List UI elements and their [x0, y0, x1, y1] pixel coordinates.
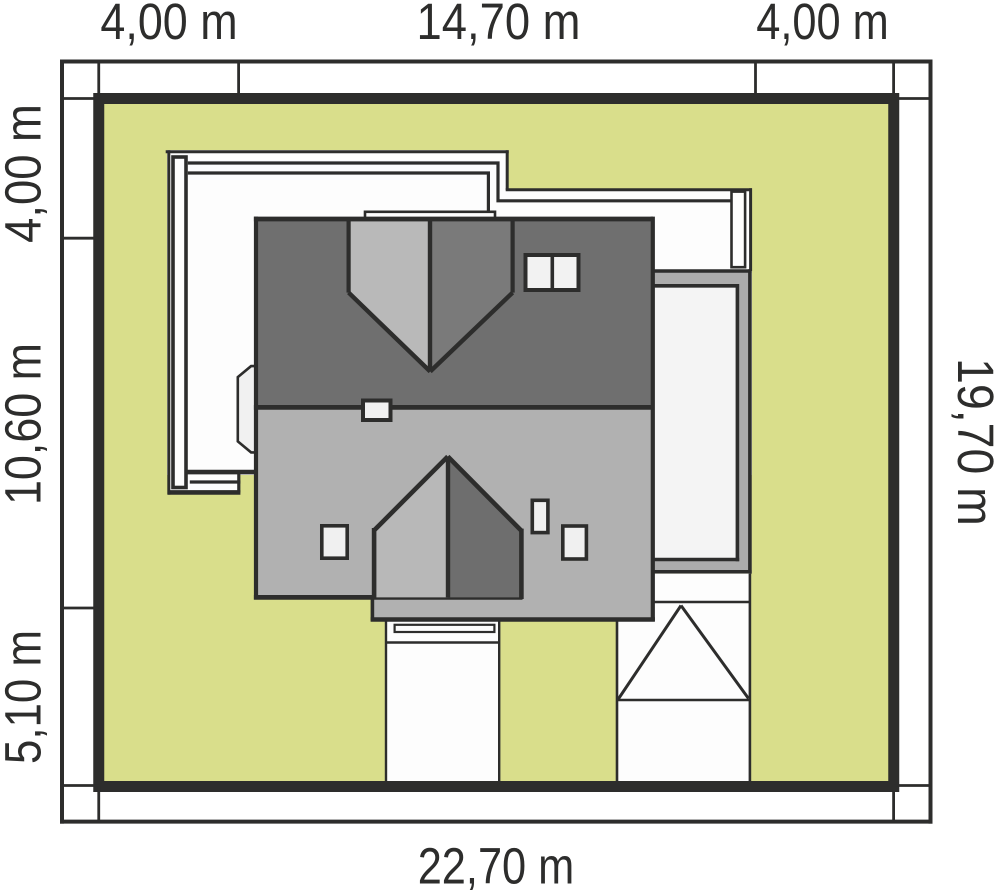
- svg-text:4,00 m: 4,00 m: [0, 104, 52, 243]
- svg-text:4,00 m: 4,00 m: [100, 0, 237, 51]
- svg-text:5,10 m: 5,10 m: [0, 630, 52, 764]
- svg-text:14,70 m: 14,70 m: [417, 0, 581, 51]
- svg-text:22,70 m: 22,70 m: [418, 838, 575, 892]
- svg-text:10,60 m: 10,60 m: [0, 343, 52, 505]
- svg-text:19,70 m: 19,70 m: [946, 358, 1000, 526]
- svg-text:4,00 m: 4,00 m: [756, 0, 888, 51]
